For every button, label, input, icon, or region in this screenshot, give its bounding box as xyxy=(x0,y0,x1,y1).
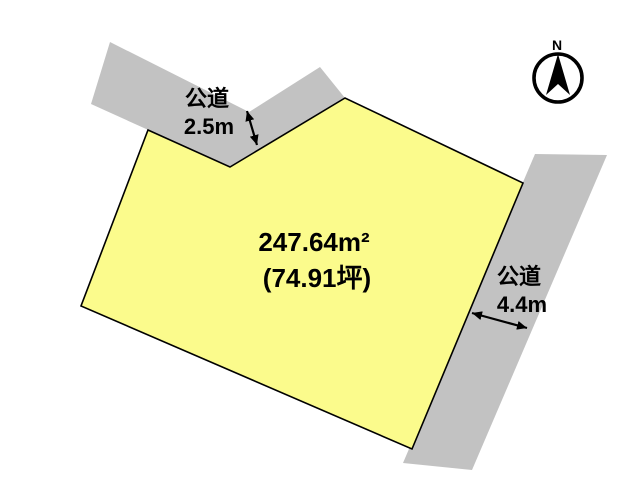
road-top-width-label: 2.5m xyxy=(184,114,234,139)
compass-needle-icon xyxy=(546,54,570,95)
plot-area-m2-label: 247.64m² xyxy=(258,227,370,257)
plot-area-tsubo-label: (74.91坪) xyxy=(263,263,371,293)
plot-diagram-svg: 公道 2.5m 公道 4.4m 247.64m² (74.91坪) N xyxy=(0,0,640,480)
land-plot-diagram: 公道 2.5m 公道 4.4m 247.64m² (74.91坪) N xyxy=(0,0,640,480)
road-right-width-label: 4.4m xyxy=(497,292,547,317)
road-right-name-label: 公道 xyxy=(497,264,541,289)
compass-north-label: N xyxy=(552,37,562,53)
road-top-name-label: 公道 xyxy=(185,86,229,111)
compass: N xyxy=(534,37,582,102)
